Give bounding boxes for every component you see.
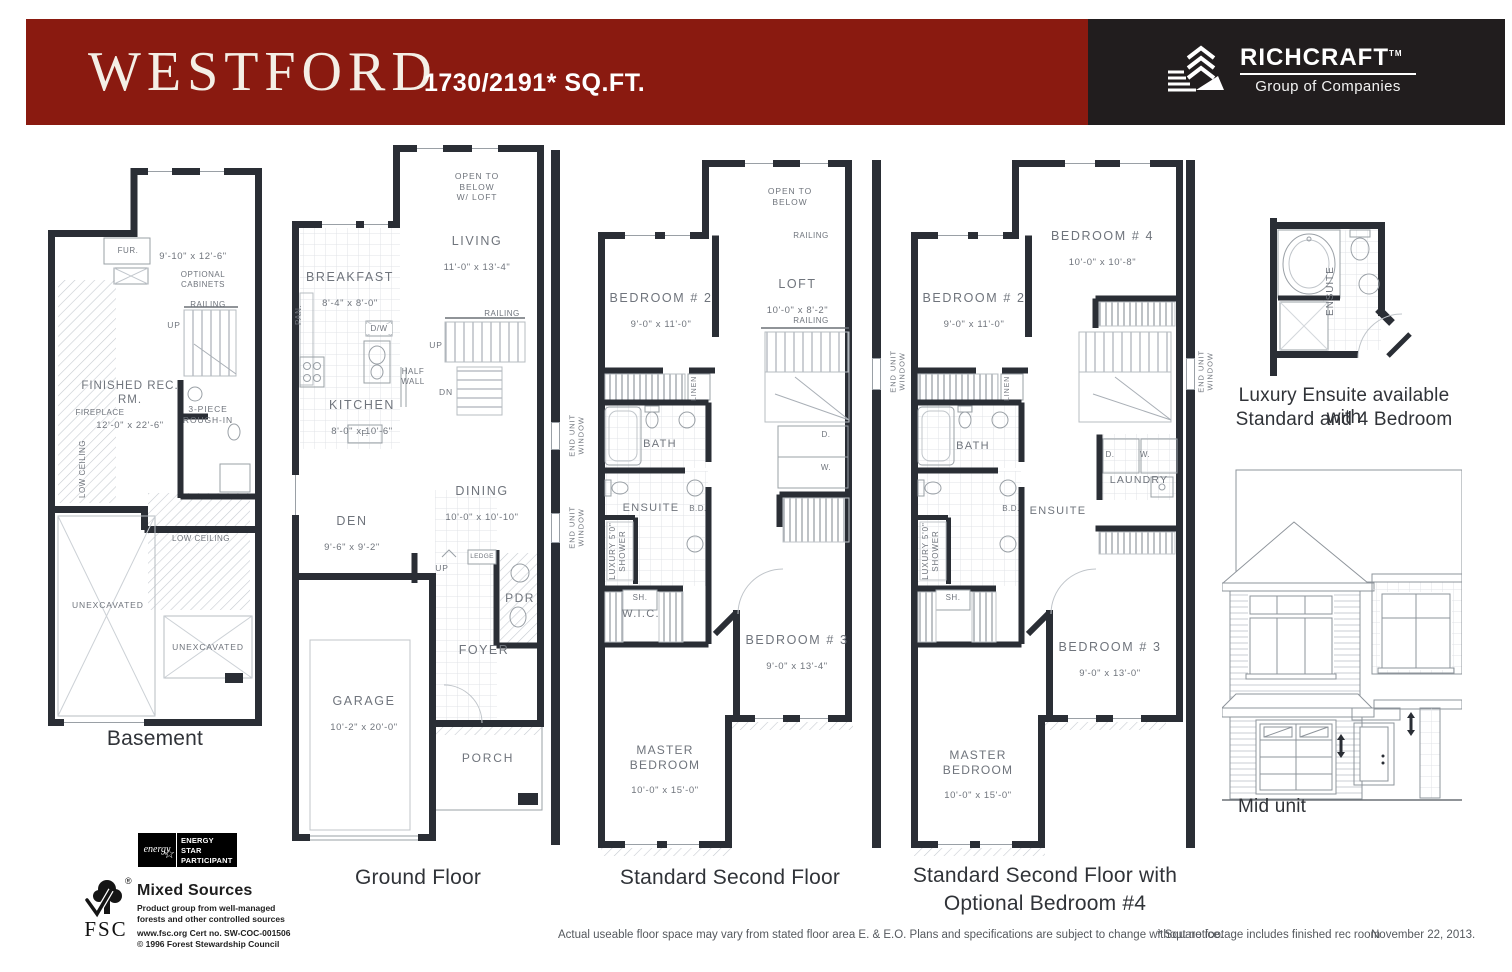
fsc-registered-mark: ® [125, 876, 132, 886]
footer-sqft-note: * Square footage includes finished rec r… [1157, 929, 1380, 941]
second-floor-caption: Standard Second Floor [595, 866, 865, 890]
end-unit-window-label: END UNIT WINDOW [568, 499, 587, 555]
square-footage: 1730/2191* SQ.FT. [424, 69, 645, 98]
energy-line3: PARTICIPANT [181, 856, 237, 866]
ground-floor-caption: Ground Floor [292, 866, 544, 890]
fsc-tree-icon [84, 876, 130, 920]
end-unit-wall [872, 160, 881, 358]
bedroom3-label: BEDROOM # 3 9'-0" x 13'-0" [1056, 627, 1164, 692]
master-bedroom-label: MASTER BEDROOM 10'-0" x 15'-0" [913, 735, 1043, 814]
bedroom2-label: BEDROOM # 2 9'-0" x 11'-0" [607, 278, 715, 343]
laundry-label: LAUNDRY [1101, 474, 1177, 487]
room-name: BEDROOM # 4 [1045, 229, 1160, 245]
room-dim: 10'-0" x 8'-2" [745, 305, 850, 317]
room-name: FINISHED REC. RM. [70, 379, 190, 408]
luxury-ensuite-plan: ENSUITE [1268, 208, 1418, 383]
room-dim: 12'-0" x 22'-6" [70, 420, 190, 432]
room-name: MASTER BEDROOM [600, 743, 730, 773]
brand-tm: TM [1389, 49, 1403, 58]
bath-label: BATH [635, 438, 685, 452]
bd-label: B.D. [683, 504, 713, 514]
rough-in-label: 3-PIECE ROUGH-IN [176, 404, 240, 425]
dryer-label: D. [1099, 450, 1121, 460]
optional-cabinets-label: OPTIONAL CABINETS [173, 270, 233, 290]
room-name: BEDROOM # 3 [1056, 640, 1164, 656]
low-ceiling-left-label: LOW CEILING [78, 436, 88, 502]
richcraft-logo-icon [1166, 44, 1236, 94]
room-dim: 10'-2" x 20'-0" [312, 722, 416, 734]
bath-label: BATH [948, 440, 998, 454]
up-label: UP [162, 320, 186, 331]
room-name: GARAGE [312, 694, 416, 710]
ensuite-room-label: ENSUITE [1325, 260, 1338, 322]
bedroom3-label: BEDROOM # 3 9'-0" x 13'-4" [743, 620, 851, 685]
unexcavated-right-label: UNEXCAVATED [170, 642, 246, 653]
fsc-cert-number: www.fsc.org Cert no. SW-COC-001506 [137, 928, 291, 938]
energy-line1: ENERGY [181, 836, 237, 846]
luxury-ensuite-drawing [1268, 208, 1418, 383]
room-dim: 9'-6" x 9'-2" [312, 542, 392, 554]
fsc-acronym: FSC [82, 917, 130, 942]
master-bedroom-label: MASTER BEDROOM 10'-0" x 15'-0" [600, 730, 730, 809]
shower-stall-label: SH. [626, 593, 654, 603]
wic-label: W.I.C. [613, 608, 669, 622]
room-dim: 10'-0" x 10'-10" [432, 512, 532, 524]
fsc-title: Mixed Sources [137, 882, 291, 900]
breakfast-label: BREAKFAST 8'-4" x 8'-0" [300, 257, 400, 322]
energy-line2: STAR [181, 846, 237, 856]
dryer-label: D. [815, 430, 837, 440]
railing-top-label: RAILING [785, 231, 837, 241]
brand-name-text: RICHCRAFT [1240, 44, 1389, 71]
railing-label: RAILING [186, 300, 230, 310]
end-unit-wall [1186, 160, 1195, 358]
shower-stall-label: SH. [939, 593, 967, 603]
room-dim: 8'-4" x 8'-0" [300, 298, 400, 310]
brand-block: RICHCRAFTTM Group of Companies [1240, 46, 1416, 95]
garage-label: GARAGE 10'-2" x 20'-0" [312, 681, 416, 746]
elevation-drawing-container [1222, 468, 1462, 803]
room-name: BREAKFAST [300, 270, 400, 286]
dn-label: DN [434, 387, 458, 398]
ensuite-caption-line2: Standard and 4 Bedroom [1228, 409, 1460, 431]
optional-caption-line1: Standard Second Floor with [885, 864, 1205, 888]
linen-label: LINEN [691, 375, 700, 401]
energy-star-badge: energy☆ ENERGY STAR PARTICIPANT [138, 833, 237, 867]
room-dim: 11'-0" x 13'-4" [432, 262, 522, 274]
basement-plan: FUR. 9'-10" x 12'-6" OPTIONAL CABINETS R… [48, 168, 262, 726]
dining-label: DINING 10'-0" x 10'-10" [432, 471, 532, 536]
fsc-text-block: Mixed Sources Product group from well-ma… [137, 882, 291, 949]
railing-mid-label: RAILING [785, 316, 837, 326]
room-dim: 9'-0" x 13'-4" [743, 661, 851, 673]
room-dim: 9'-0" x 11'-0" [920, 319, 1028, 331]
foyer-label: FOYER [444, 643, 524, 659]
linen-label: LINEN [1004, 375, 1013, 401]
brand-subtitle: Group of Companies [1240, 78, 1416, 95]
room-name: MASTER BEDROOM [913, 748, 1043, 778]
porch-label: PORCH [450, 751, 526, 766]
half-wall-label: HALF WALL [392, 367, 434, 387]
model-title: WESTFORD [88, 44, 438, 100]
bedroom2-label: BEDROOM # 2 9'-0" x 11'-0" [920, 278, 1028, 343]
room-name: LIVING [432, 234, 522, 250]
luxury-shower-label: LUXURY 5'0" SHOWER [921, 517, 941, 585]
footer-date: November 22, 2013. [1371, 929, 1475, 941]
brand-name: RICHCRAFTTM [1240, 46, 1416, 75]
end-unit-window-label: END UNIT WINDOW [1197, 343, 1216, 399]
room-name: DEN [312, 514, 392, 530]
fireplace-label: FIREPLACE [68, 408, 132, 418]
fsc-description: Product group from well-managed forests … [137, 903, 291, 925]
optional-caption-line2: Optional Bedroom #4 [885, 892, 1205, 916]
end-unit-wall [551, 543, 560, 845]
energy-script-logo: energy☆ [138, 833, 176, 867]
up-foyer-label: UP [430, 563, 454, 574]
dishwasher-label: D/W [366, 324, 392, 334]
basement-room-dim: 9'-10" x 12'-6" [143, 251, 243, 263]
room-dim: 10'-0" x 15'-0" [913, 790, 1043, 802]
ledge-label: LEDGE [468, 553, 496, 561]
star-icon: ☆ [163, 837, 175, 871]
kitchen-label: KITCHEN 8'-0" x 10'-6" [310, 385, 414, 450]
unexcavated-left-label: UNEXCAVATED [72, 600, 140, 611]
rec-room-label: FINISHED REC. RM. 12'-0" x 22'-6" [70, 366, 190, 444]
fsc-copyright: © 1996 Forest Stewardship Council [137, 939, 291, 949]
luxury-shower-label: LUXURY 5'0" SHOWER [608, 517, 628, 585]
basement-caption: Basement [48, 727, 262, 751]
end-unit-wall [1186, 390, 1195, 848]
end-unit-window-label: END UNIT WINDOW [568, 407, 587, 463]
room-dim: 9'-0" x 13'-0" [1056, 668, 1164, 680]
mid-unit-caption: Mid unit [1238, 796, 1358, 818]
room-name: BEDROOM # 2 [920, 291, 1028, 307]
floorplan-sheet: WESTFORD 1730/2191* SQ.FT. RICHCRAFTTM G… [0, 0, 1512, 972]
freezer-label: F. [354, 429, 376, 439]
up-label: UP [424, 340, 448, 351]
footer-disclaimer: Actual useable floor space may vary from… [558, 929, 1223, 941]
end-unit-wall [551, 150, 560, 422]
end-unit-window-icon [551, 513, 560, 543]
low-ceiling-right-label: LOW CEILING [168, 534, 234, 544]
ground-floor-plan: OPEN TO BELOW W/ LOFT LIVING 11'-0" x 13… [292, 145, 544, 850]
powder-room-label: PDR [498, 591, 542, 606]
den-label: DEN 9'-6" x 9'-2" [312, 501, 392, 566]
room-dim: 9'-0" x 11'-0" [607, 319, 715, 331]
ensuite-label: ENSUITE [1027, 505, 1089, 519]
living-label: LIVING 11'-0" x 13'-4" [432, 221, 522, 286]
end-unit-window-icon [872, 358, 881, 390]
bd-label: B.D. [996, 504, 1026, 514]
ensuite-label: ENSUITE [620, 502, 682, 516]
washer-label: W. [1134, 450, 1156, 460]
room-name: BEDROOM # 2 [607, 291, 715, 307]
end-unit-wall [551, 450, 560, 513]
room-name: DINING [432, 484, 532, 500]
room-name: LOFT [745, 277, 850, 293]
end-unit-window-icon [551, 422, 560, 450]
room-name: BEDROOM # 3 [743, 633, 851, 649]
open-below-label: OPEN TO BELOW W/ LOFT [442, 171, 512, 203]
washer-label: W. [815, 463, 837, 473]
optional-floor-plan: BEDROOM # 4 10'-0" x 10'-8" BEDROOM # 2 … [905, 152, 1190, 862]
bedroom4-label: BEDROOM # 4 10'-0" x 10'-8" [1045, 216, 1160, 281]
energy-badge-text: ENERGY STAR PARTICIPANT [176, 833, 237, 867]
pantry-label: PAN. [294, 293, 304, 337]
room-dim: 10'-0" x 10'-8" [1045, 257, 1160, 269]
mid-unit-elevation-drawing [1222, 468, 1462, 803]
end-unit-wall [872, 390, 881, 848]
open-below-label: OPEN TO BELOW [753, 186, 827, 207]
railing-label: RAILING [478, 309, 526, 319]
end-unit-window-icon [1186, 358, 1195, 390]
room-name: KITCHEN [310, 398, 414, 414]
room-dim: 10'-0" x 15'-0" [600, 785, 730, 797]
second-floor-plan: OPEN TO BELOW RAILING BEDROOM # 2 9'-0" … [595, 152, 865, 862]
